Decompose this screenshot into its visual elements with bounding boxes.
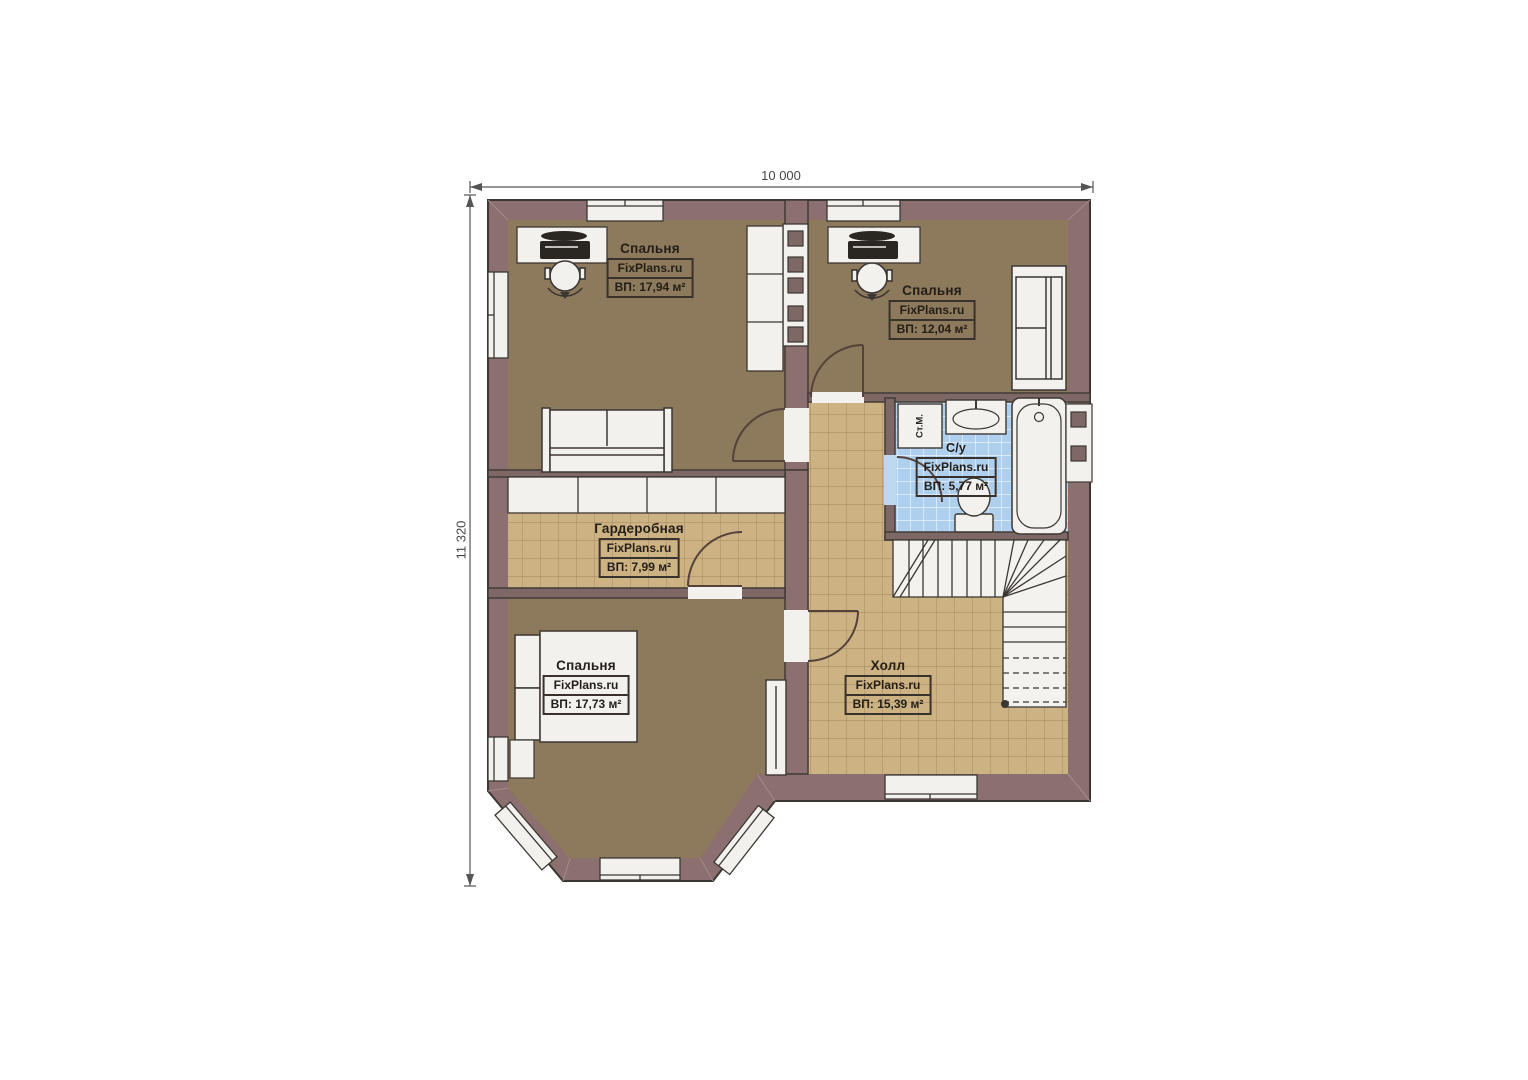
- wardrobe-cabinet: [747, 226, 783, 371]
- printer-icon: [540, 231, 590, 259]
- shelf-column: [783, 224, 808, 346]
- closet-row: [508, 477, 785, 513]
- room-title-bedroom-top-left: Спальня: [620, 241, 680, 256]
- room-info-plate: FixPlans.ru ВП: 17,73 м²: [543, 675, 630, 715]
- window-top-2: [827, 200, 900, 221]
- watermark-text: FixPlans.ru: [891, 302, 974, 319]
- watermark-text: FixPlans.ru: [601, 540, 678, 557]
- room-title-bedroom-top-right: Спальня: [902, 283, 962, 298]
- watermark-text: FixPlans.ru: [847, 677, 930, 694]
- nightstand-icon: [510, 740, 534, 778]
- printer-icon: [848, 231, 898, 259]
- room-area-label: ВП: 12,04 м²: [891, 319, 974, 338]
- floor-plan-canvas: 10 000 11 320 Спальня FixPlans.ru ВП: 17…: [0, 0, 1528, 1080]
- dimension-height-label: 11 320: [454, 521, 469, 560]
- dimension-width-label: 10 000: [761, 168, 801, 183]
- window-top-1: [587, 200, 663, 221]
- bathtub-icon: [1012, 398, 1066, 534]
- room-info-plate: FixPlans.ru ВП: 5,77 м²: [916, 457, 997, 497]
- window-hall-bottom: [885, 775, 977, 799]
- room-info-plate: FixPlans.ru ВП: 15,39 м²: [845, 675, 932, 715]
- watermark-text: FixPlans.ru: [545, 677, 628, 694]
- room-area-label: ВП: 17,94 м²: [609, 277, 692, 296]
- room-info-plate: FixPlans.ru ВП: 12,04 м²: [889, 300, 976, 340]
- room-area-label: ВП: 7,99 м²: [601, 557, 678, 576]
- watermark-text: FixPlans.ru: [918, 459, 995, 476]
- room-title-wardrobe: Гардеробная: [594, 521, 684, 536]
- room-title-bedroom-bottom: Спальня: [556, 658, 616, 673]
- double-bed-icon: [542, 408, 672, 472]
- sink-icon: [946, 400, 1006, 434]
- washing-machine-label: Ст.М.: [915, 414, 926, 438]
- desk-icon: [517, 227, 607, 263]
- room-info-plate: FixPlans.ru ВП: 17,94 м²: [607, 258, 694, 298]
- desk-icon: [828, 227, 920, 263]
- floor-plan-drawing: [0, 0, 1528, 1080]
- room-area-label: ВП: 17,73 м²: [545, 694, 628, 713]
- single-bed-icon: [1012, 266, 1066, 390]
- watermark-text: FixPlans.ru: [609, 260, 692, 277]
- room-area-label: ВП: 5,77 м²: [918, 476, 995, 495]
- room-area-label: ВП: 15,39 м²: [847, 694, 930, 713]
- room-title-hall: Холл: [871, 658, 906, 673]
- room-title-bathroom: С/у: [946, 441, 966, 455]
- dresser-icon: [766, 680, 786, 775]
- window-left-1: [488, 272, 508, 358]
- bay-window-bottom: [600, 858, 680, 880]
- window-left-2: [488, 737, 508, 781]
- room-info-plate: FixPlans.ru ВП: 7,99 м²: [599, 538, 680, 578]
- wall-niche-shelves: [1066, 404, 1092, 482]
